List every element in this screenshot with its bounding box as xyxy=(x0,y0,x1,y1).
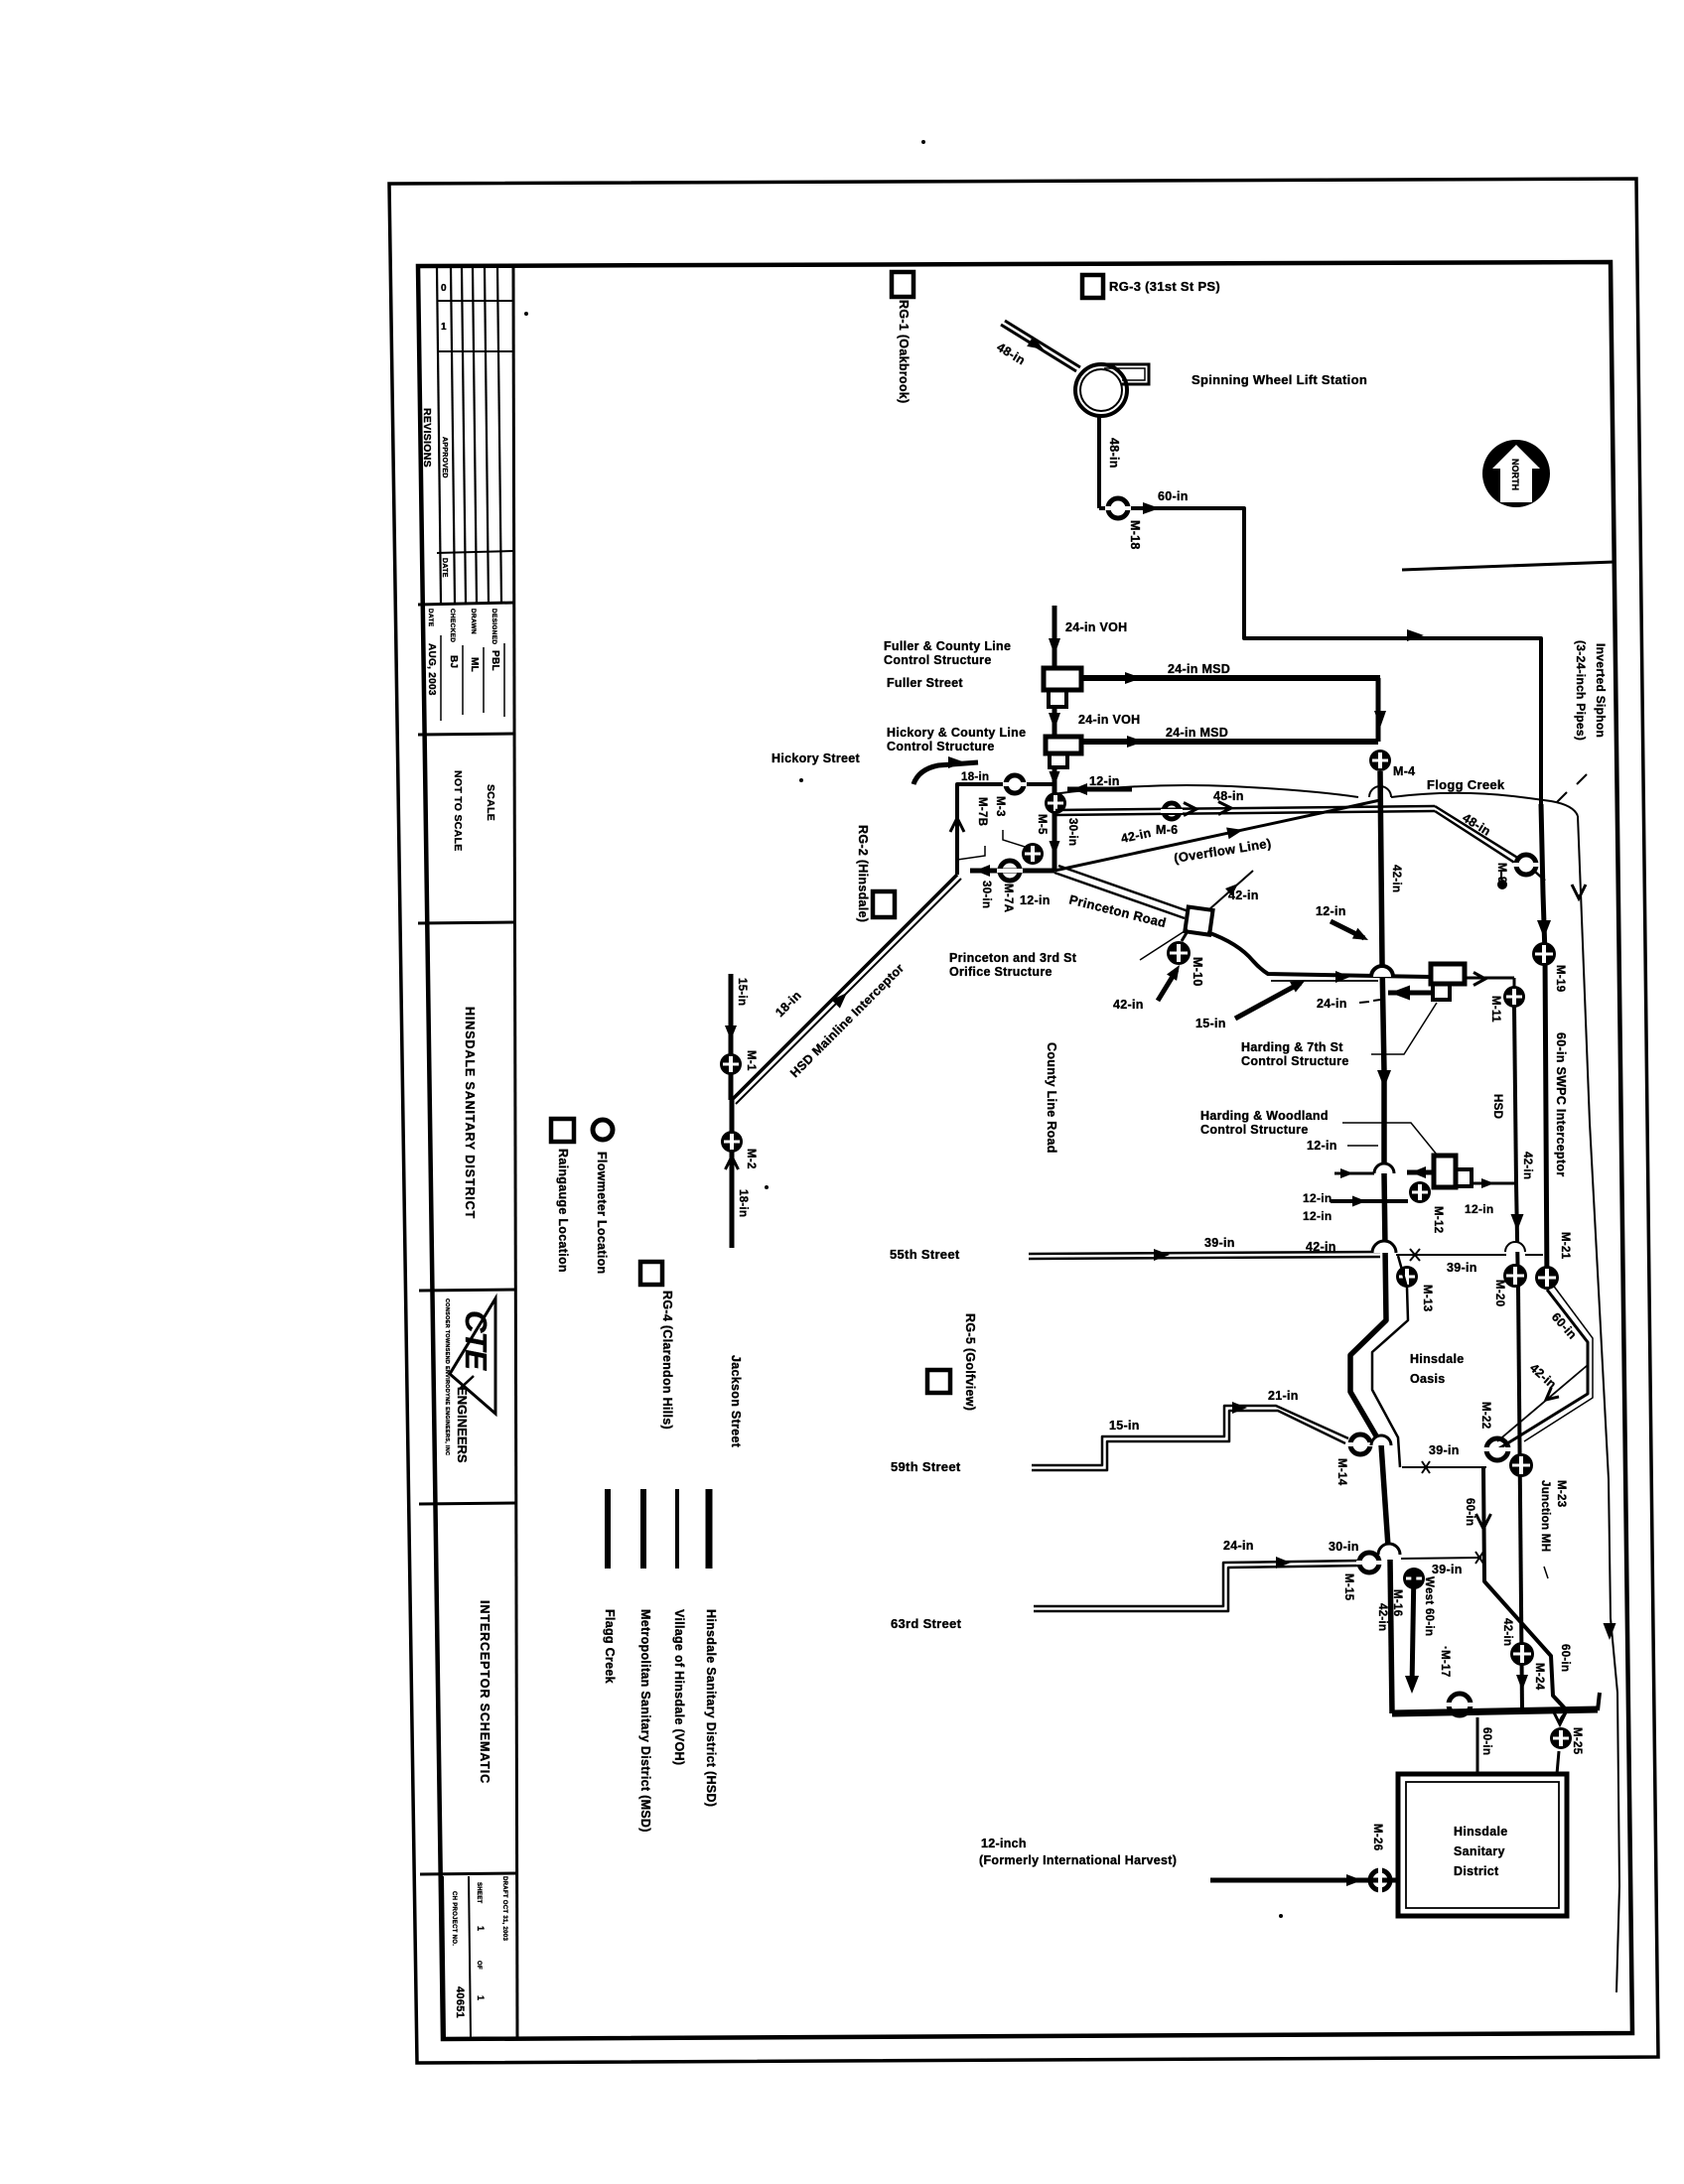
svg-text:M-3: M-3 xyxy=(994,796,1006,817)
svg-text:Control Structure: Control Structure xyxy=(887,740,995,753)
svg-text:1: 1 xyxy=(441,322,447,333)
svg-text:M-12: M-12 xyxy=(1432,1206,1444,1233)
svg-text:M-19: M-19 xyxy=(1554,965,1566,992)
svg-text:39-in: 39-in xyxy=(1204,1236,1235,1250)
svg-text:NORTH: NORTH xyxy=(1510,459,1520,490)
svg-text:Metropolitan Sanitary District: Metropolitan Sanitary District (MSD) xyxy=(638,1609,652,1833)
svg-text:M-16: M-16 xyxy=(1391,1589,1403,1616)
svg-text:30-in: 30-in xyxy=(1066,818,1078,846)
svg-text:ML: ML xyxy=(469,657,480,672)
svg-text:Sanitary: Sanitary xyxy=(1454,1844,1505,1858)
svg-text:12-in: 12-in xyxy=(1303,1191,1333,1205)
svg-text:39-in: 39-in xyxy=(1429,1443,1460,1457)
svg-text:AUG, 2003: AUG, 2003 xyxy=(426,643,437,696)
svg-text:HINSDALE SANITARY DISTRICT: HINSDALE SANITARY DISTRICT xyxy=(463,1007,477,1219)
svg-text:40651: 40651 xyxy=(454,1986,466,2018)
svg-text:RG-4 (Clarendon Hills): RG-4 (Clarendon Hills) xyxy=(660,1291,674,1430)
svg-text:M-23: M-23 xyxy=(1555,1480,1567,1507)
svg-text:M-24: M-24 xyxy=(1533,1663,1545,1691)
svg-text:Harding & Woodland: Harding & Woodland xyxy=(1200,1109,1329,1123)
svg-text:M-22: M-22 xyxy=(1479,1402,1491,1429)
svg-text:DESIGNED: DESIGNED xyxy=(491,609,497,644)
svg-text:55th Street: 55th Street xyxy=(890,1247,960,1262)
svg-text:60-in: 60-in xyxy=(1158,489,1189,503)
svg-text:42-in: 42-in xyxy=(1390,865,1402,892)
svg-text:42-in: 42-in xyxy=(1521,1152,1533,1179)
svg-text:OF: OF xyxy=(476,1961,482,1970)
svg-text:24-in MSD: 24-in MSD xyxy=(1166,726,1228,740)
svg-text:12-in: 12-in xyxy=(1307,1139,1337,1153)
svg-text:Hinsdale: Hinsdale xyxy=(1454,1825,1508,1839)
svg-text:12-in: 12-in xyxy=(1316,904,1346,918)
svg-text:42-in: 42-in xyxy=(1113,998,1144,1012)
svg-text:Village of Hinsdale (VOH): Village of Hinsdale (VOH) xyxy=(672,1609,686,1765)
svg-text:M-2: M-2 xyxy=(745,1149,757,1169)
svg-text:18-in: 18-in xyxy=(961,771,989,783)
svg-text:21-in: 21-in xyxy=(1268,1389,1299,1403)
svg-text:Control Structure: Control Structure xyxy=(1200,1123,1309,1137)
svg-text:1: 1 xyxy=(476,1995,486,2000)
svg-text:M-6: M-6 xyxy=(1156,823,1178,837)
svg-text:M-21: M-21 xyxy=(1559,1232,1571,1260)
svg-text:48-in: 48-in xyxy=(1213,789,1244,803)
svg-text:·M-17: ·M-17 xyxy=(1439,1646,1451,1678)
svg-text:Hickory & County Line: Hickory & County Line xyxy=(887,726,1026,740)
svg-text:M-18: M-18 xyxy=(1128,520,1142,550)
svg-text:Hinsdale: Hinsdale xyxy=(1410,1352,1465,1366)
svg-text:Princeton and 3rd St: Princeton and 3rd St xyxy=(949,951,1077,965)
svg-text:42-in: 42-in xyxy=(1376,1603,1388,1631)
svg-text:RG-3 (31st St PS): RG-3 (31st St PS) xyxy=(1109,279,1220,294)
svg-text:Fuller Street: Fuller Street xyxy=(887,676,963,690)
svg-text:M-26: M-26 xyxy=(1371,1824,1383,1850)
svg-text:West 60-in: West 60-in xyxy=(1423,1576,1435,1636)
svg-text:60-in: 60-in xyxy=(1480,1727,1492,1755)
svg-text:42-in: 42-in xyxy=(1306,1240,1336,1254)
svg-text:INTERCEPTOR SCHEMATIC: INTERCEPTOR SCHEMATIC xyxy=(478,1600,491,1784)
svg-text:15-in: 15-in xyxy=(1195,1017,1226,1030)
svg-text:Flogg Creek: Flogg Creek xyxy=(1427,777,1505,792)
svg-text:59th Street: 59th Street xyxy=(891,1459,961,1474)
svg-text:Raingauge Location: Raingauge Location xyxy=(556,1149,570,1273)
svg-text:Fuller & County Line: Fuller & County Line xyxy=(884,639,1011,653)
svg-text:Inverted Siphon: Inverted Siphon xyxy=(1594,643,1608,738)
svg-text:M-11: M-11 xyxy=(1489,996,1501,1023)
svg-text:BJ: BJ xyxy=(448,655,459,668)
svg-text:RG-5 (Golfview): RG-5 (Golfview) xyxy=(963,1313,977,1411)
svg-text:DATE: DATE xyxy=(427,609,434,627)
svg-text:ENGINEERS: ENGINEERS xyxy=(455,1387,470,1463)
svg-text:30-in: 30-in xyxy=(1329,1540,1359,1554)
svg-text:24-in: 24-in xyxy=(1317,997,1347,1011)
svg-text:Jackson Street: Jackson Street xyxy=(729,1355,743,1448)
svg-text:Junction MH: Junction MH xyxy=(1539,1480,1551,1552)
svg-text:CHECKED: CHECKED xyxy=(449,609,456,642)
svg-text:(3-24-inch Pipes): (3-24-inch Pipes) xyxy=(1574,640,1588,741)
svg-text:42-in: 42-in xyxy=(1501,1618,1513,1646)
svg-text:42-in: 42-in xyxy=(1228,888,1259,902)
svg-text:60-in SWPC Interceptor: 60-in SWPC Interceptor xyxy=(1554,1032,1568,1177)
svg-text:Harding & 7th St: Harding & 7th St xyxy=(1241,1040,1343,1054)
svg-text:39-in: 39-in xyxy=(1447,1261,1477,1275)
svg-text:Spinning Wheel Lift Station: Spinning Wheel Lift Station xyxy=(1192,372,1367,387)
svg-text:M-25: M-25 xyxy=(1571,1727,1583,1755)
svg-text:12-in: 12-in xyxy=(1303,1209,1333,1223)
svg-text:12-in: 12-in xyxy=(1020,893,1051,907)
svg-text:15-in: 15-in xyxy=(1109,1419,1140,1433)
svg-text:NOT TO SCALE: NOT TO SCALE xyxy=(452,770,464,852)
svg-text:M-20: M-20 xyxy=(1493,1280,1505,1306)
svg-text:DATE: DATE xyxy=(441,558,448,578)
svg-text:DRAWN: DRAWN xyxy=(470,609,477,634)
svg-text:SHEET: SHEET xyxy=(476,1882,482,1904)
svg-text:24-in VOH: 24-in VOH xyxy=(1078,713,1140,727)
svg-text:CONSOER TOWNSEND ENVIRODYNE EN: CONSOER TOWNSEND ENVIRODYNE ENGINEERS, I… xyxy=(444,1298,450,1455)
svg-text:60-in: 60-in xyxy=(1464,1498,1475,1526)
svg-text:M-5: M-5 xyxy=(1036,814,1048,835)
svg-text:39-in: 39-in xyxy=(1432,1563,1463,1576)
svg-text:County Line Road: County Line Road xyxy=(1045,1042,1058,1154)
svg-text:18-in: 18-in xyxy=(737,1189,749,1217)
svg-text:48-in: 48-in xyxy=(1107,438,1121,469)
svg-text:Flagg Creek: Flagg Creek xyxy=(603,1609,617,1684)
svg-text:12-in: 12-in xyxy=(1465,1202,1494,1216)
svg-text:M-15: M-15 xyxy=(1342,1573,1354,1601)
svg-text:24-in: 24-in xyxy=(1223,1539,1254,1553)
svg-text:1: 1 xyxy=(476,1926,486,1931)
svg-text:Hinsdale Sanitary District (HS: Hinsdale Sanitary District (HSD) xyxy=(704,1609,718,1807)
svg-text:15-in: 15-in xyxy=(736,978,748,1006)
svg-text:M-10: M-10 xyxy=(1191,957,1204,987)
svg-text:DRAFT OCT 31, 2003: DRAFT OCT 31, 2003 xyxy=(501,1876,507,1941)
svg-text:24-in MSD: 24-in MSD xyxy=(1168,662,1230,676)
svg-text:RG-1 (Oakbrook): RG-1 (Oakbrook) xyxy=(897,300,911,404)
svg-text:HSD: HSD xyxy=(1491,1094,1503,1119)
svg-text:Control Structure: Control Structure xyxy=(1241,1054,1349,1068)
svg-text:Flowmeter Location: Flowmeter Location xyxy=(595,1152,609,1274)
svg-text:M-7A: M-7A xyxy=(1002,884,1014,912)
svg-text:0: 0 xyxy=(441,283,447,294)
svg-text:PBL: PBL xyxy=(490,650,500,671)
svg-text:63rd Street: 63rd Street xyxy=(891,1616,962,1631)
svg-text:Hickory Street: Hickory Street xyxy=(772,751,860,765)
svg-text:(Formerly International Harves: (Formerly International Harvest) xyxy=(979,1853,1177,1867)
svg-text:12-inch: 12-inch xyxy=(981,1837,1027,1850)
svg-text:30-in: 30-in xyxy=(980,881,992,908)
svg-text:M-4: M-4 xyxy=(1393,764,1415,778)
svg-text:District: District xyxy=(1454,1864,1499,1878)
svg-text:REVISIONS: REVISIONS xyxy=(421,408,433,468)
svg-text:SCALE: SCALE xyxy=(485,784,496,821)
svg-text:RG-2 (Hinsdale): RG-2 (Hinsdale) xyxy=(856,825,870,922)
svg-text:Oasis: Oasis xyxy=(1410,1372,1446,1386)
svg-text:Orifice Structure: Orifice Structure xyxy=(949,965,1052,979)
svg-text:CH PROJECT NO.: CH PROJECT NO. xyxy=(451,1891,457,1946)
svg-text:CTE: CTE xyxy=(459,1310,493,1371)
svg-text:M-13: M-13 xyxy=(1421,1285,1433,1311)
svg-text:24-in VOH: 24-in VOH xyxy=(1065,620,1127,634)
svg-text:Control Structure: Control Structure xyxy=(884,653,992,667)
svg-text:M-1: M-1 xyxy=(745,1050,757,1071)
svg-text:APPROVED: APPROVED xyxy=(441,437,448,478)
svg-text:M-14: M-14 xyxy=(1335,1458,1347,1486)
svg-text:60-in: 60-in xyxy=(1559,1644,1571,1672)
svg-text:12-in: 12-in xyxy=(1089,774,1120,788)
svg-text:M-7B: M-7B xyxy=(976,797,988,826)
